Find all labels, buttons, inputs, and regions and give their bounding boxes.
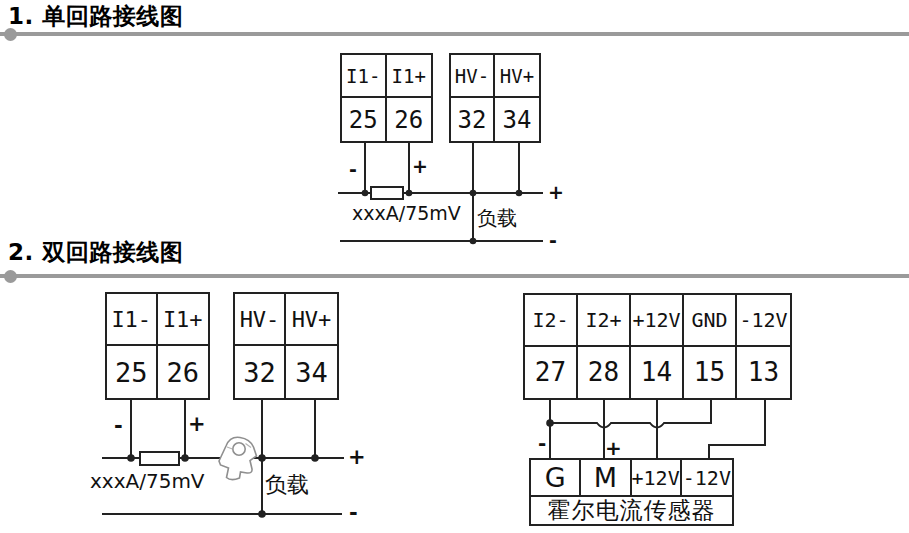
terminal-number: 34	[495, 98, 539, 141]
shunt-resistor	[140, 452, 179, 465]
terminal-number: 26	[158, 346, 209, 398]
terminal-label: I2+	[578, 295, 631, 347]
terminal-number: 32	[451, 98, 495, 141]
output-plus-mark: +	[348, 447, 366, 468]
shunt-plus-mark: +	[412, 157, 428, 176]
terminal-label: HV+	[495, 55, 539, 98]
current-terminal-block: I1- I1+ 25 26	[340, 53, 433, 143]
shunt-rating-label: xxxA/75mV	[90, 469, 205, 493]
shunt-minus-mark: -	[114, 416, 123, 437]
sensor-minus-mark: -	[538, 433, 546, 453]
terminal-label: I1+	[158, 294, 209, 346]
shunt-plus-mark: +	[188, 414, 206, 435]
terminal-number: 32	[235, 346, 286, 398]
output-minus-mark: -	[349, 503, 358, 524]
hall-sensor-terminals: G M +12V -12V	[529, 458, 734, 497]
load-label: 负载	[265, 470, 309, 500]
neg12v-wire	[709, 400, 765, 458]
terminal-number: 25	[342, 98, 387, 141]
shunt-resistor	[371, 187, 403, 199]
terminal-label: I1-	[107, 294, 158, 346]
gnd-cross-wire	[550, 400, 711, 428]
voltage-terminal-block: HV- HV+ 32 34	[449, 53, 541, 143]
terminal-number: 14	[631, 347, 684, 399]
terminal-number: 25	[107, 346, 158, 398]
terminal-number: 34	[286, 346, 337, 398]
terminal-label: GND	[684, 295, 737, 347]
terminal-number: 28	[578, 347, 631, 399]
second-loop-terminal-block: I2- I2+ +12V GND -12V 27 28 14 15 13	[523, 293, 792, 400]
current-terminal-block: I1- I1+ 25 26	[105, 292, 210, 400]
shunt-minus-mark: -	[349, 160, 357, 179]
terminal-number: 13	[737, 347, 790, 399]
terminal-number: 26	[387, 98, 432, 141]
section2-right-wires	[550, 400, 765, 458]
terminal-label: I2-	[525, 295, 578, 347]
terminal-number: 27	[525, 347, 578, 399]
hall-sensor-name: 霍尔电流传感器	[529, 497, 734, 526]
terminal-label: I1-	[342, 55, 387, 98]
terminal-label: I1+	[387, 55, 432, 98]
wiring-diagram-page: 1. 单回路接线图 2. 双回路接线图	[0, 0, 909, 533]
terminal-lead-wires	[131, 400, 315, 458]
sensor-plus-mark: +	[605, 438, 622, 458]
sensor-terminal: -12V	[682, 460, 732, 495]
terminal-label: HV+	[286, 294, 337, 346]
terminal-number: 15	[684, 347, 737, 399]
terminal-label: -12V	[737, 295, 790, 347]
terminal-label: HV-	[235, 294, 286, 346]
terminal-label: +12V	[631, 295, 684, 347]
output-plus-mark: +	[548, 183, 564, 202]
hall-sensor-block: G M +12V -12V 霍尔电流传感器	[529, 458, 734, 526]
shunt-rating-label: xxxA/75mV	[352, 202, 461, 224]
sensor-terminal: M	[581, 460, 631, 495]
terminal-lead-wires	[365, 143, 519, 193]
hall-sensor-clamp-icon	[219, 437, 257, 479]
terminal-label: HV-	[451, 55, 495, 98]
sensor-terminal: G	[531, 460, 581, 495]
section2-right-junction-dots	[546, 419, 554, 427]
sensor-lead-wires	[550, 400, 657, 458]
output-minus-mark: -	[549, 231, 557, 250]
voltage-terminal-block: HV- HV+ 32 34	[233, 292, 339, 400]
load-label: 负载	[477, 205, 517, 232]
sensor-terminal: +12V	[632, 460, 682, 495]
